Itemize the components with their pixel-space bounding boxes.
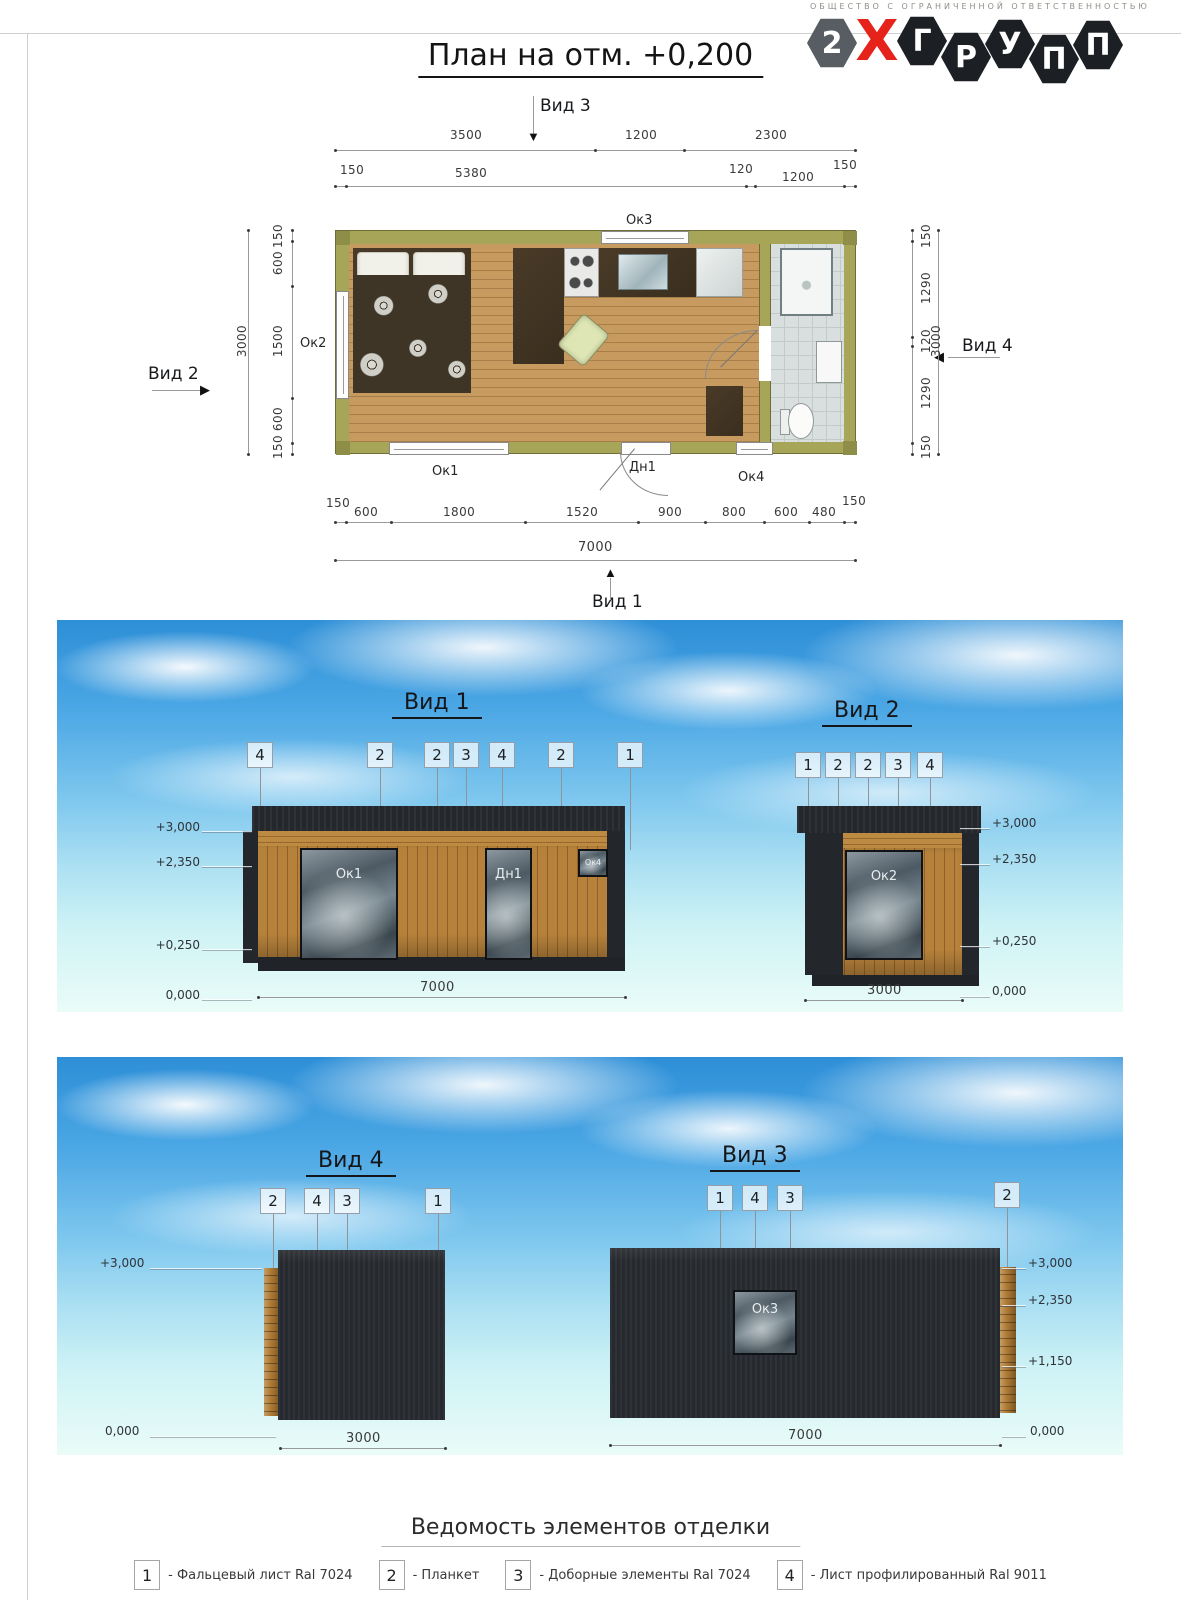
view1-window-ok4: Ок4 bbox=[578, 849, 608, 877]
view3-window-ok3-label: Ок3 bbox=[735, 1302, 795, 1317]
view2-wood-band bbox=[843, 833, 962, 848]
callout-leader bbox=[630, 768, 631, 850]
callout: 3 bbox=[777, 1185, 803, 1211]
view4-width-dim: 3000 bbox=[346, 1431, 381, 1446]
window-ok2 bbox=[336, 291, 349, 399]
dim-bottom-5: 800 bbox=[722, 505, 746, 519]
callout: 4 bbox=[247, 742, 273, 768]
plan-view2-arrow: ▶ bbox=[200, 383, 210, 396]
plan-window-ok4-label: Ок4 bbox=[738, 470, 764, 485]
level-line bbox=[150, 1268, 262, 1269]
dim-top2-3: 1200 bbox=[782, 170, 814, 184]
callout: 3 bbox=[885, 752, 911, 778]
dim-bottom-6: 600 bbox=[774, 505, 798, 519]
dim-line-bottom bbox=[335, 522, 855, 523]
logo-letter-x: Х bbox=[850, 12, 904, 70]
callout: 1 bbox=[707, 1185, 733, 1211]
company-logo: ОБЩЕСТВО С ОГРАНИЧЕННОЙ ОТВЕТСТВЕННОСТЬЮ… bbox=[810, 0, 1120, 92]
callout: 3 bbox=[453, 742, 479, 768]
dim-bottom-4: 900 bbox=[658, 505, 682, 519]
level-line bbox=[202, 866, 252, 867]
plan-view1-label: Вид 1 bbox=[592, 592, 643, 612]
window-ok1 bbox=[389, 442, 509, 455]
view1-width-dim-line bbox=[258, 997, 625, 998]
wall-post bbox=[843, 231, 857, 245]
dim-right-0: 150 bbox=[919, 216, 933, 256]
level-line bbox=[1002, 1436, 1026, 1437]
view2-left-trim bbox=[805, 833, 843, 975]
view1-window-ok1-label: Ок1 bbox=[302, 867, 396, 882]
callout: 1 bbox=[617, 742, 643, 768]
dim-right-total: 3000 bbox=[929, 321, 943, 361]
legend-item-1-label: - Фальцевый лист Ral 7024 bbox=[168, 1568, 352, 1583]
dim-top1-1: 1200 bbox=[625, 128, 657, 142]
view1-window-ok1: Ок1 bbox=[300, 848, 398, 960]
legend-item-4-number: 4 bbox=[777, 1560, 803, 1590]
dim-left-1: 600 bbox=[271, 243, 285, 283]
view2-right-trim bbox=[962, 833, 979, 975]
plan-window-ok2-label: Ок2 bbox=[300, 336, 326, 351]
callout: 2 bbox=[825, 752, 851, 778]
floor-plan bbox=[335, 230, 856, 454]
level-line bbox=[150, 1436, 276, 1437]
level-line bbox=[960, 864, 990, 865]
dim-bottom-total: 7000 bbox=[578, 540, 613, 555]
dim-bottom-7: 480 bbox=[812, 505, 836, 519]
plan-view2-leader bbox=[152, 390, 204, 391]
dim-top2-2: 120 bbox=[729, 162, 753, 176]
dim-left-2: 1500 bbox=[271, 321, 285, 361]
view1-left-trim bbox=[243, 831, 259, 963]
dim-line-bottom-total bbox=[335, 560, 855, 561]
window-ok4 bbox=[736, 442, 773, 455]
callout: 2 bbox=[424, 742, 450, 768]
bed-blanket bbox=[353, 275, 471, 393]
wall-post bbox=[336, 441, 350, 455]
callout: 2 bbox=[367, 742, 393, 768]
dim-right-1: 1290 bbox=[919, 268, 933, 308]
level-line bbox=[960, 828, 990, 829]
callout: 2 bbox=[548, 742, 574, 768]
legend-item-3-label: - Доборные элементы Ral 7024 bbox=[539, 1568, 750, 1583]
plan-view1-arrow: ▲ bbox=[604, 566, 617, 579]
level-mark: +3,000 bbox=[100, 1256, 144, 1270]
view1-right-trim bbox=[607, 831, 625, 968]
level-mark: +2,350 bbox=[1028, 1293, 1072, 1307]
view3-width-dim: 7000 bbox=[788, 1428, 823, 1443]
dim-line-right-inner bbox=[912, 230, 913, 454]
door-dv1-opening bbox=[759, 326, 771, 381]
elevation-view2-title: Вид 2 bbox=[822, 698, 912, 727]
legend-item-2: 2 - Планкет bbox=[379, 1560, 480, 1590]
level-mark: 0,000 bbox=[105, 1424, 139, 1438]
level-line bbox=[960, 996, 990, 997]
level-mark: +3,000 bbox=[992, 816, 1036, 830]
left-margin-rule bbox=[27, 33, 28, 1600]
view2-roof bbox=[797, 806, 981, 833]
level-mark: +0,250 bbox=[150, 938, 200, 952]
dim-left-total: 3000 bbox=[235, 321, 249, 361]
dim-right-4: 150 bbox=[919, 427, 933, 467]
view4-dark-facade bbox=[278, 1250, 445, 1420]
wall-post bbox=[843, 441, 857, 455]
callout: 3 bbox=[334, 1188, 360, 1214]
level-mark: +1,150 bbox=[1028, 1354, 1072, 1368]
legend-title: Ведомость элементов отделки bbox=[381, 1515, 800, 1547]
stove bbox=[564, 248, 599, 297]
elevation-view4-title: Вид 4 bbox=[306, 1148, 396, 1177]
wall-post bbox=[336, 231, 350, 245]
view2-width-dim: 3000 bbox=[867, 983, 902, 998]
door-dn1-swing-arc bbox=[620, 452, 668, 496]
view3-width-dim-line bbox=[610, 1445, 1000, 1446]
logo-hex-p2: П bbox=[1073, 18, 1123, 72]
level-mark: 0,000 bbox=[1030, 1424, 1064, 1438]
callout: 1 bbox=[425, 1188, 451, 1214]
dim-top1-2: 2300 bbox=[755, 128, 787, 142]
view1-door-dn1-label: Дн1 bbox=[487, 867, 530, 882]
plan-view1-leader bbox=[610, 578, 611, 600]
callout-leader bbox=[347, 1214, 348, 1252]
view4-width-dim-line bbox=[280, 1448, 445, 1449]
callout-leader bbox=[755, 1211, 756, 1249]
plan-window-ok1-label: Ок1 bbox=[432, 464, 458, 479]
logo-hex-r: Р bbox=[941, 30, 991, 84]
dim-bottom-2: 1800 bbox=[443, 505, 475, 519]
dim-top2-1: 5380 bbox=[455, 166, 487, 180]
callout-leader bbox=[317, 1214, 318, 1252]
elevation-view3-title: Вид 3 bbox=[710, 1143, 800, 1172]
cabinet-low bbox=[706, 386, 743, 436]
plan-view2-label: Вид 2 bbox=[148, 364, 199, 384]
bathroom-sink bbox=[816, 341, 842, 383]
legend-item-2-label: - Планкет bbox=[413, 1568, 480, 1583]
level-mark: +3,000 bbox=[150, 820, 200, 834]
legend-item-2-number: 2 bbox=[379, 1560, 405, 1590]
dim-right-3: 1290 bbox=[919, 373, 933, 413]
legend-item-4-label: - Лист профилированный Ral 9011 bbox=[811, 1568, 1047, 1583]
level-line bbox=[1002, 1366, 1026, 1367]
callout: 4 bbox=[742, 1185, 768, 1211]
legend-item-3-number: 3 bbox=[505, 1560, 531, 1590]
plan-view4-label: Вид 4 bbox=[962, 336, 1013, 356]
level-mark: 0,000 bbox=[150, 988, 200, 1002]
view3-dark-facade bbox=[610, 1248, 1000, 1418]
window-ok3 bbox=[601, 231, 689, 244]
view2-window-ok2-label: Ок2 bbox=[847, 869, 921, 884]
logo-hex-u: У bbox=[985, 17, 1035, 71]
level-line bbox=[1002, 1268, 1026, 1269]
shower-tray bbox=[780, 248, 833, 316]
level-line bbox=[202, 999, 252, 1000]
fridge bbox=[696, 248, 743, 297]
dim-bottom-0: 150 bbox=[326, 496, 350, 510]
dim-line-top1 bbox=[335, 150, 855, 151]
plan-view4-leader bbox=[948, 357, 1000, 358]
view3-wood-strip bbox=[1000, 1267, 1016, 1413]
level-line bbox=[960, 946, 990, 947]
kitchen-sink bbox=[618, 254, 668, 290]
callout-leader bbox=[273, 1214, 274, 1268]
callout-leader bbox=[790, 1211, 791, 1249]
level-line bbox=[1002, 1305, 1026, 1306]
level-mark: +2,350 bbox=[150, 855, 200, 869]
view3-window-ok3: Ок3 bbox=[733, 1290, 797, 1355]
dim-line-top2 bbox=[335, 186, 855, 187]
level-mark: +3,000 bbox=[1028, 1256, 1072, 1270]
elevation-view1-title: Вид 1 bbox=[392, 690, 482, 719]
dim-top1-0: 3500 bbox=[450, 128, 482, 142]
dim-bottom-3: 1520 bbox=[566, 505, 598, 519]
legend: 1 - Фальцевый лист Ral 7024 2 - Планкет … bbox=[0, 1560, 1181, 1590]
legend-item-4: 4 - Лист профилированный Ral 9011 bbox=[777, 1560, 1047, 1590]
drawing-sheet: ОБЩЕСТВО С ОГРАНИЧЕННОЙ ОТВЕТСТВЕННОСТЬЮ… bbox=[0, 0, 1181, 1600]
callout: 2 bbox=[855, 752, 881, 778]
level-mark: 0,000 bbox=[992, 984, 1026, 998]
callout-leader bbox=[1007, 1208, 1008, 1268]
dim-left-4: 150 bbox=[271, 427, 285, 467]
page-title: План на отм. +0,200 bbox=[418, 38, 763, 78]
plan-view3-arrow: ▼ bbox=[527, 130, 540, 143]
dim-top2-0: 150 bbox=[340, 163, 364, 177]
callout-leader bbox=[720, 1211, 721, 1249]
legend-item-3: 3 - Доборные элементы Ral 7024 bbox=[505, 1560, 750, 1590]
logo-hexagons: 2 Х Г Р У П П bbox=[810, 12, 1120, 70]
legend-item-1: 1 - Фальцевый лист Ral 7024 bbox=[134, 1560, 352, 1590]
dim-line-left-inner bbox=[292, 230, 293, 454]
callout: 2 bbox=[260, 1188, 286, 1214]
level-line bbox=[202, 831, 252, 832]
view1-width-dim: 7000 bbox=[420, 980, 455, 995]
callout: 4 bbox=[304, 1188, 330, 1214]
logo-hex-p1: П bbox=[1029, 32, 1079, 86]
plan-view3-label: Вид 3 bbox=[540, 96, 591, 116]
dim-bottom-1: 600 bbox=[354, 505, 378, 519]
view2-width-dim-line bbox=[805, 1000, 962, 1001]
toilet bbox=[788, 403, 814, 439]
wardrobe-cabinet bbox=[513, 248, 564, 364]
callout: 4 bbox=[917, 752, 943, 778]
view1-wood-band bbox=[258, 831, 607, 846]
callout: 2 bbox=[994, 1182, 1020, 1208]
plan-window-ok3-label: Ок3 bbox=[626, 213, 652, 228]
level-mark: +2,350 bbox=[992, 852, 1036, 866]
dim-top2-4: 150 bbox=[833, 158, 857, 172]
logo-hex-g: Г bbox=[897, 14, 947, 68]
level-line bbox=[202, 949, 252, 950]
view1-door-dn1: Дн1 bbox=[485, 848, 532, 960]
view1-roof bbox=[252, 806, 625, 831]
legend-item-1-number: 1 bbox=[134, 1560, 160, 1590]
callout: 4 bbox=[489, 742, 515, 768]
level-mark: +0,250 bbox=[992, 934, 1036, 948]
callout: 1 bbox=[795, 752, 821, 778]
dim-bottom-8: 150 bbox=[842, 494, 866, 508]
view2-window-ok2: Ок2 bbox=[845, 850, 923, 960]
view1-window-ok4-label: Ок4 bbox=[580, 858, 606, 867]
